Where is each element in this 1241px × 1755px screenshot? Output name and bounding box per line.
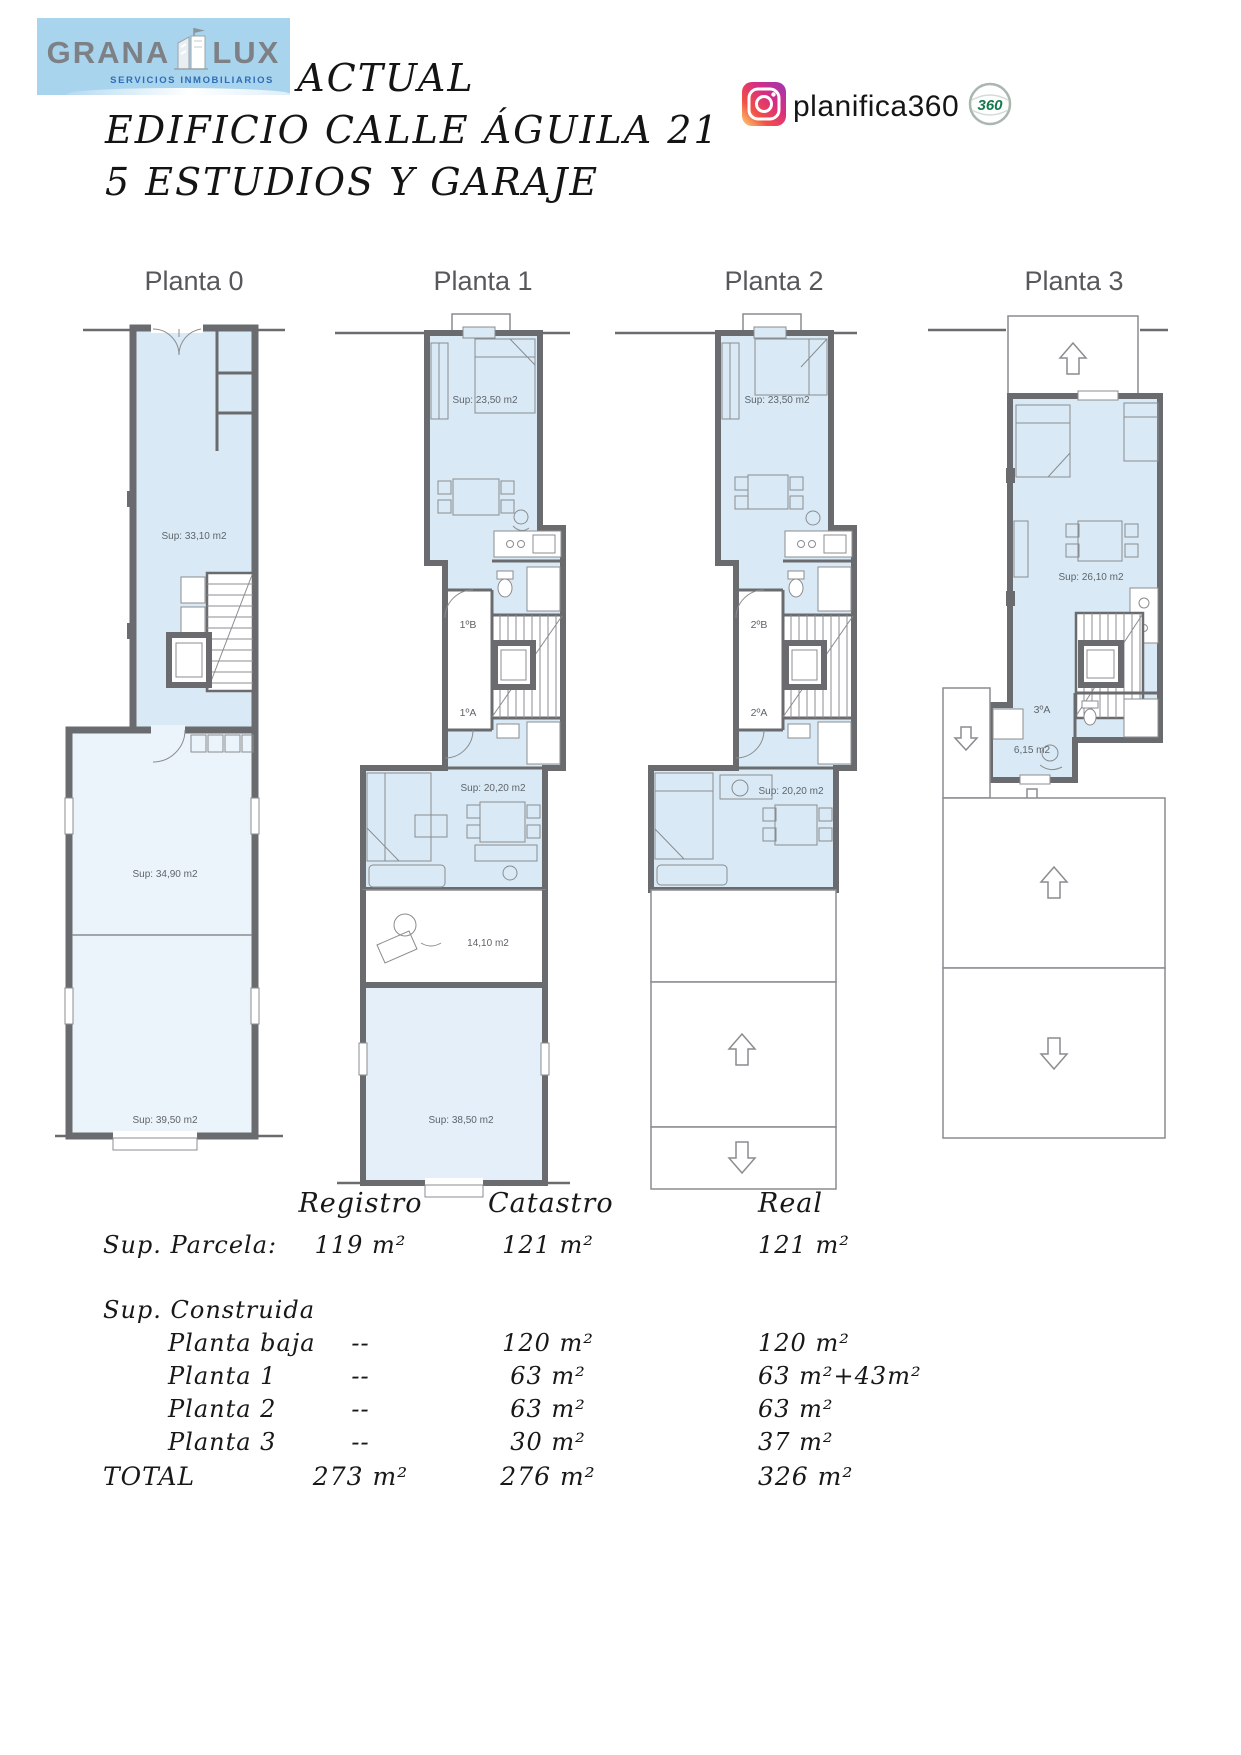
staircase bbox=[207, 573, 253, 691]
logo-swoosh-decoration bbox=[67, 88, 290, 95]
cell-catastro: 120 m² bbox=[488, 1329, 608, 1357]
buildings-icon bbox=[172, 27, 210, 78]
column-header-catastro: Catastro bbox=[488, 1188, 608, 1219]
unit-label: 2ºA bbox=[751, 707, 768, 719]
document-page: ESTADO ACTUAL EDIFICIO CALLE ÁGUILA 21 5… bbox=[0, 0, 1241, 1755]
svg-text:360: 360 bbox=[978, 97, 1004, 114]
granalux-logo: GRANA LUX SERVICIOS INMOBILIARIOS bbox=[37, 18, 290, 95]
table-row: Planta baja -- 120 m² 120 m² bbox=[103, 1329, 1003, 1363]
area-label: Sup: 23,50 m2 bbox=[452, 395, 517, 406]
elevator bbox=[495, 643, 533, 687]
bottom-gate bbox=[113, 1131, 197, 1150]
table-row: Sup. Construida bbox=[103, 1296, 1003, 1330]
area-label: Sup: 20,20 m2 bbox=[460, 783, 525, 794]
cell-catastro: 276 m² bbox=[488, 1462, 608, 1491]
cell-real: 326 m² bbox=[758, 1462, 853, 1491]
unit-label: 1ºA bbox=[460, 707, 477, 719]
cell-registro: 273 m² bbox=[293, 1462, 428, 1491]
column-header-real: Real bbox=[758, 1188, 823, 1219]
cell-real: 37 m² bbox=[758, 1428, 834, 1456]
floorplan-planta-1: Sup: 23,50 m2 1ºB 1ºA Sup: 20,20 m2 14,1… bbox=[325, 283, 570, 1208]
roof-boxes bbox=[943, 798, 1165, 1138]
floorplan-planta-2: Sup: 23,50 m2 2ºB 2ºA Sup: 20,20 m2 bbox=[585, 283, 857, 1208]
logo-name-left: GRANA bbox=[47, 35, 171, 71]
elevator bbox=[786, 643, 824, 687]
cell-real: 121 m² bbox=[758, 1231, 850, 1259]
elevator bbox=[169, 635, 209, 685]
table-row: Planta 2 -- 63 m² 63 m² bbox=[103, 1395, 1003, 1429]
badge-360-icon: 360 bbox=[966, 80, 1014, 133]
area-label: 6,15 m2 bbox=[1014, 745, 1051, 756]
cell-catastro: 63 m² bbox=[488, 1362, 608, 1390]
cell-catastro: 63 m² bbox=[488, 1395, 608, 1423]
patio bbox=[363, 890, 545, 985]
area-label: Sup: 26,10 m2 bbox=[1058, 572, 1123, 583]
table-row: Sup. Parcela: 119 m² 121 m² 121 m² bbox=[103, 1231, 1003, 1265]
area-label: Sup: 20,20 m2 bbox=[758, 786, 823, 797]
row-label: Planta 2 bbox=[168, 1395, 276, 1423]
instagram-handle: planifica360 bbox=[793, 90, 959, 124]
cell-real: 63 m²+43m² bbox=[758, 1362, 922, 1390]
table-header-row: Registro Catastro Real bbox=[103, 1188, 1003, 1222]
cell-registro: -- bbox=[293, 1428, 428, 1456]
cell-catastro: 30 m² bbox=[488, 1428, 608, 1456]
area-label: 14,10 m2 bbox=[467, 938, 509, 949]
unit-label: 3ºA bbox=[1034, 704, 1051, 716]
area-label: Sup: 23,50 m2 bbox=[744, 395, 809, 406]
title-line-2: EDIFICIO CALLE ÁGUILA 21 bbox=[105, 104, 720, 156]
title-line-3: 5 ESTUDIOS Y GARAJE bbox=[105, 156, 720, 208]
row-label: Sup. Construida bbox=[103, 1296, 315, 1324]
logo-name-row: GRANA LUX bbox=[47, 27, 281, 78]
cell-registro: -- bbox=[293, 1329, 428, 1357]
row-label: Sup. Parcela: bbox=[103, 1231, 277, 1259]
table-row-total: TOTAL 273 m² 276 m² 326 m² bbox=[103, 1462, 1003, 1496]
area-label: Sup: 34,90 m2 bbox=[132, 869, 197, 880]
instagram-block: planifica360 360 bbox=[742, 80, 1014, 133]
area-label: Sup: 39,50 m2 bbox=[132, 1115, 197, 1126]
area-label: Sup: 33,10 m2 bbox=[161, 531, 226, 542]
kitchen bbox=[494, 531, 561, 557]
unit-label: 1ºB bbox=[460, 619, 477, 631]
logo-tagline: SERVICIOS INMOBILIARIOS bbox=[110, 75, 290, 86]
floorplan-planta-3: Sup: 26,10 m2 3ºA 6,15 m2 bbox=[928, 283, 1173, 1163]
table-row: Planta 1 -- 63 m² 63 m²+43m² bbox=[103, 1362, 1003, 1396]
row-label: TOTAL bbox=[103, 1462, 195, 1491]
row-label: Planta 3 bbox=[168, 1428, 276, 1456]
table-row: Planta 3 -- 30 m² 37 m² bbox=[103, 1428, 1003, 1462]
column-header-registro: Registro bbox=[293, 1188, 428, 1219]
elevator bbox=[1081, 643, 1121, 685]
unit-label: 2ºB bbox=[751, 619, 768, 631]
logo-name-right: LUX bbox=[212, 35, 280, 71]
kitchen bbox=[785, 531, 852, 557]
cell-catastro: 121 m² bbox=[488, 1231, 608, 1259]
cell-registro: -- bbox=[293, 1362, 428, 1390]
instagram-icon bbox=[742, 82, 786, 131]
cell-registro: 119 m² bbox=[293, 1231, 428, 1259]
floorplan-planta-0: Sup: 33,10 m2 Sup: 34,90 m2 Sup: 39,50 m… bbox=[55, 283, 285, 1198]
cell-real: 120 m² bbox=[758, 1329, 850, 1357]
row-label: Planta 1 bbox=[168, 1362, 276, 1390]
cell-real: 63 m² bbox=[758, 1395, 834, 1423]
cell-registro: -- bbox=[293, 1395, 428, 1423]
surfaces-table: Registro Catastro Real Sup. Parcela: 119… bbox=[103, 1188, 1003, 1518]
area-label: Sup: 38,50 m2 bbox=[428, 1115, 493, 1126]
